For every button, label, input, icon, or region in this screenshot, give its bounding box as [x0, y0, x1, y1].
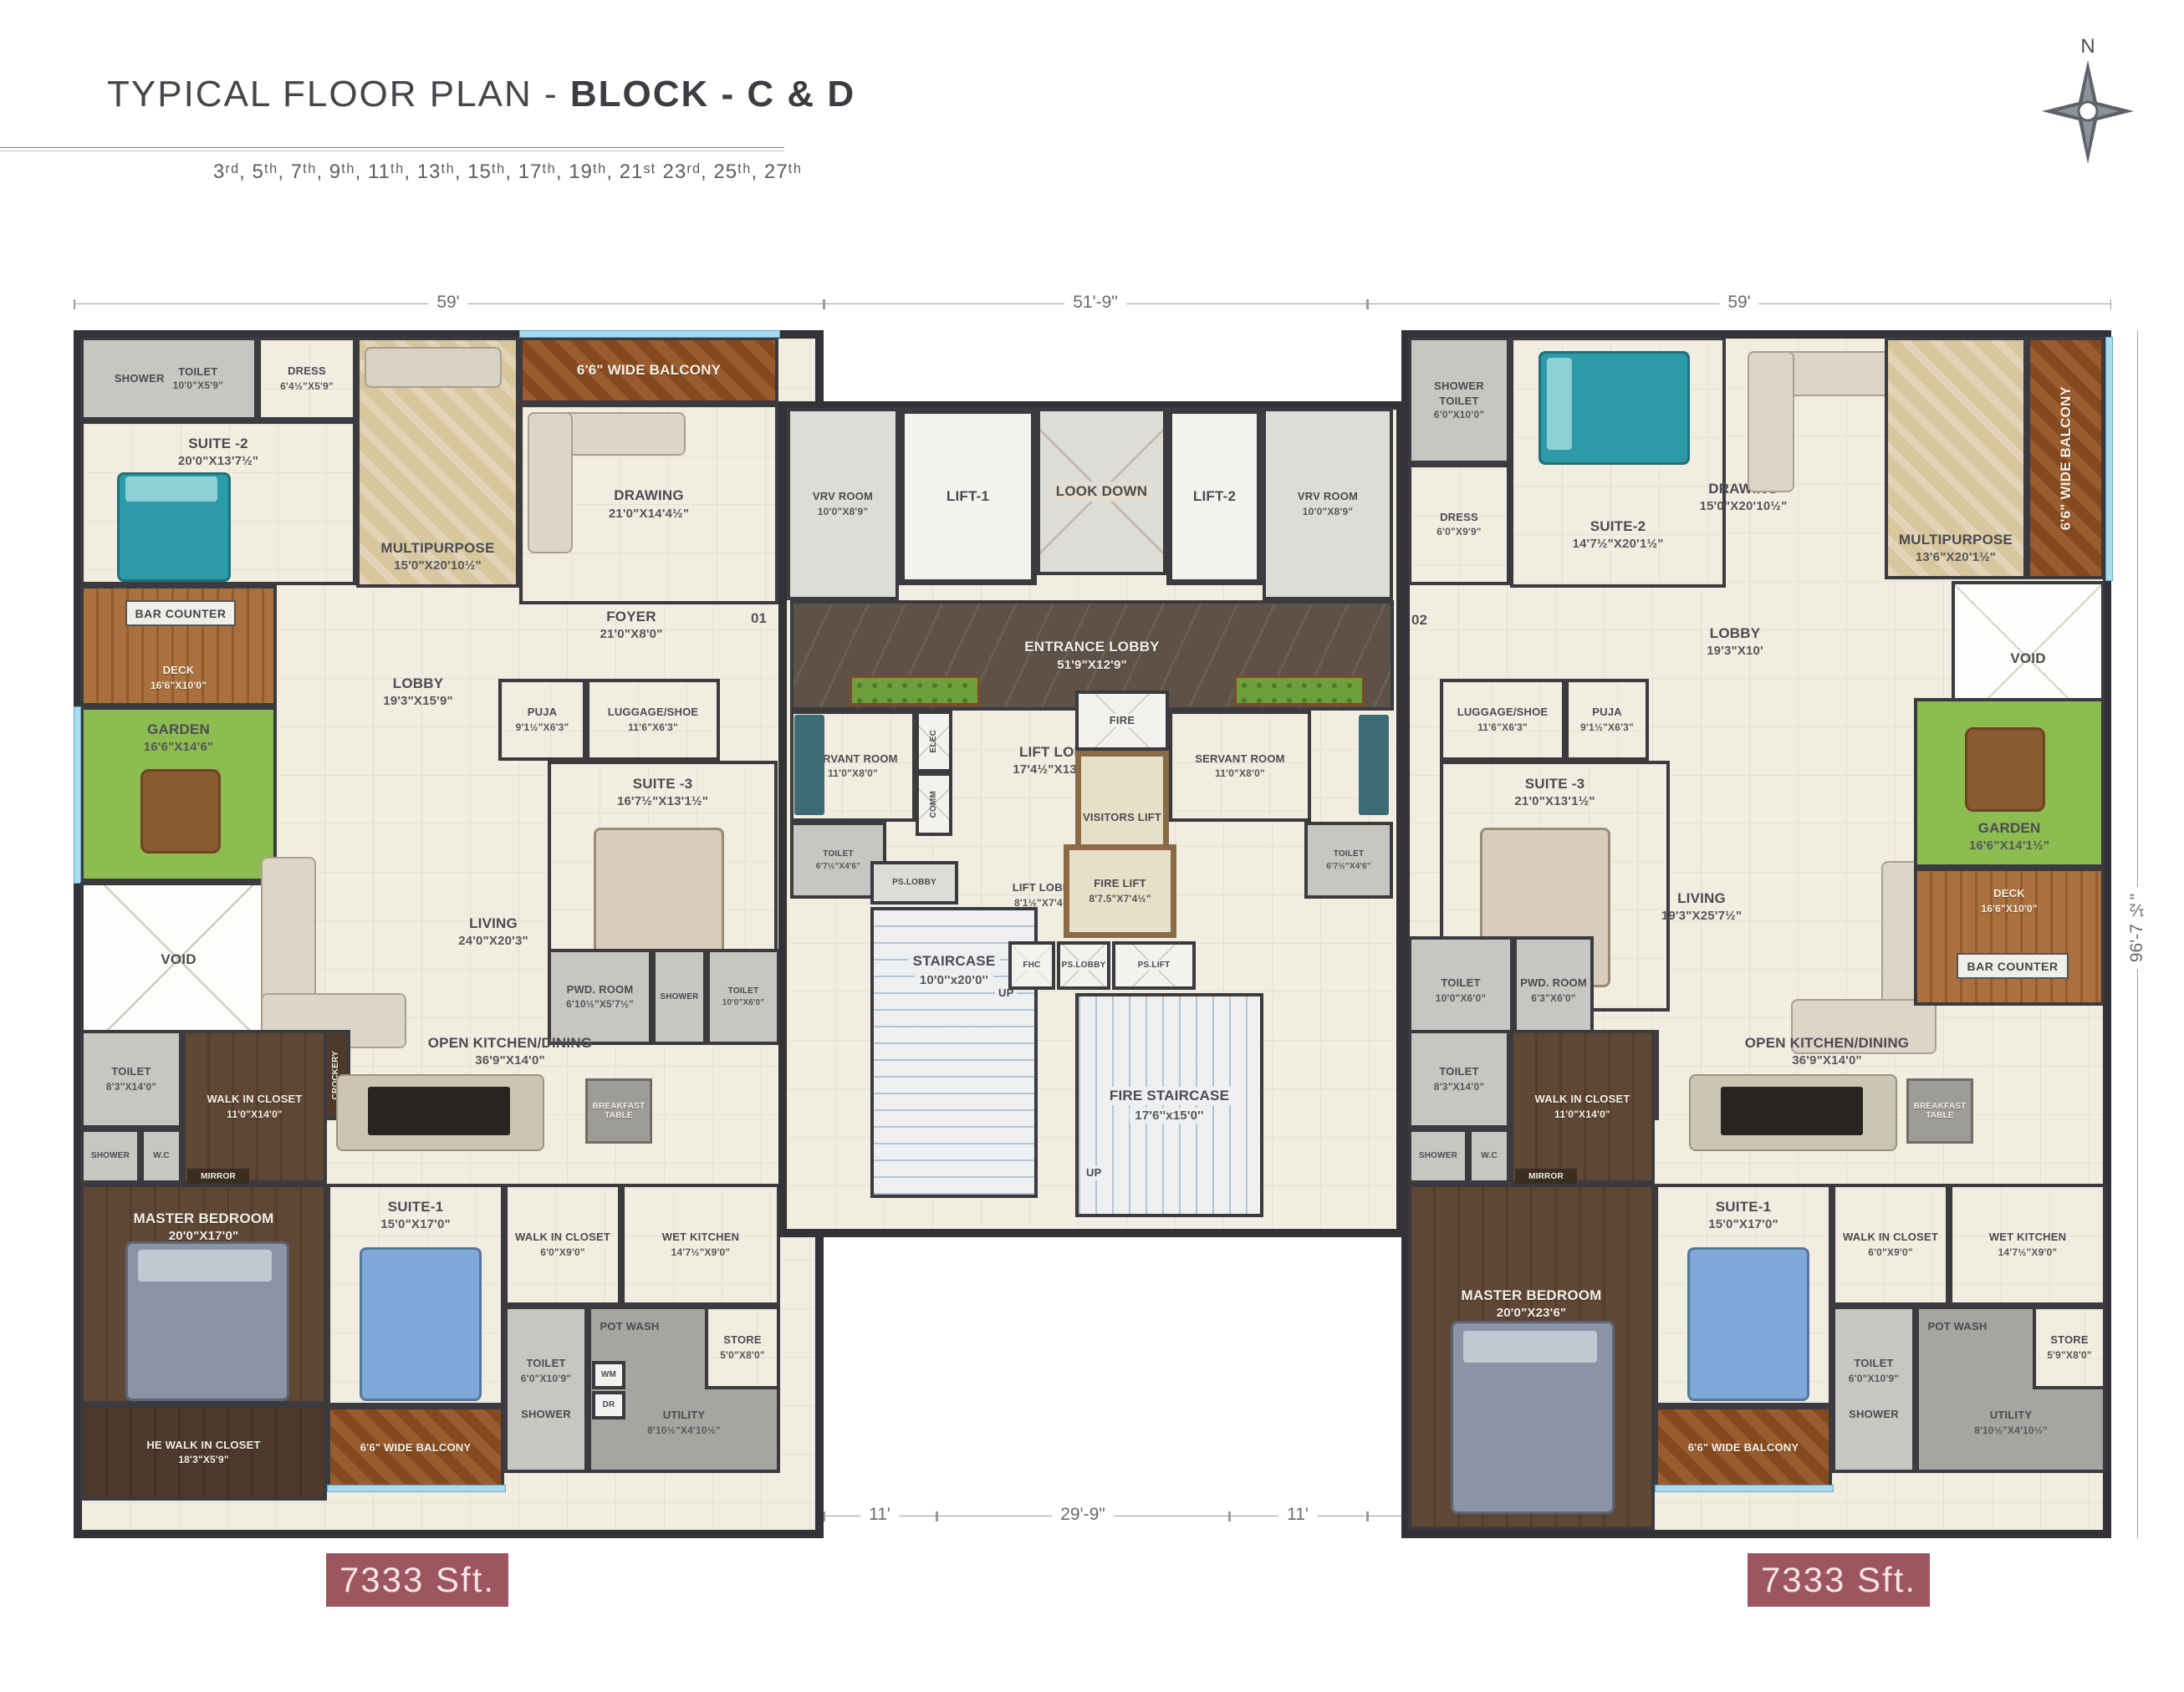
room-puja-left: PUJA9'1½"X6'3": [498, 679, 586, 761]
room-toilet-master-left: TOILET8'3"X14'0": [80, 1030, 182, 1129]
area-badge-left: 7333 Sft.: [326, 1553, 508, 1607]
balcony-bottom-left: 6'6" WIDE BALCONY: [327, 1406, 504, 1490]
window-strip: [2105, 337, 2113, 581]
floor-plan-page: TYPICAL FLOOR PLAN - BLOCK - C & D 3ʳᵈ, …: [0, 0, 2184, 1692]
window-strip: [1655, 1485, 1834, 1492]
room-toilet-servant-right: TOILET6'7½"X4'6": [1304, 822, 1393, 899]
label-lobby-right: LOBBY19'3"X10': [1664, 625, 1806, 658]
lift-1: LIFT-1: [899, 408, 1037, 585]
balcony-top-left: 6'6" WIDE BALCONY: [519, 337, 778, 404]
room-store-right: STORE5'9"X8'0": [2033, 1306, 2106, 1389]
mirror-right: MIRROR: [1515, 1169, 1577, 1185]
room-powder-left: PWD. ROOM6'10½"X5'7½": [548, 949, 652, 1045]
window-strip: [327, 1485, 506, 1492]
dim-bottom-gap-right: 11': [1278, 1505, 1317, 1525]
room-luggage-shoe-left: LUGGAGE/SHOE11'6"X6'3": [586, 679, 720, 761]
bed-graphic: [360, 1247, 482, 1401]
area-badge-right: 7333 Sft.: [1748, 1553, 1930, 1607]
ps-lift: PS.LIFT: [1112, 941, 1196, 990]
bar-counter-sign-left: BAR COUNTER: [125, 600, 236, 626]
deck-right: DECK16'6"X10'0": [1914, 868, 2105, 1006]
ps-lobby-lower: PS.LOBBY: [1057, 941, 1110, 990]
room-multipurpose-right: MULTIPURPOSE13'6"X20'1½": [1885, 337, 2027, 579]
bed-graphic: [794, 715, 824, 815]
room-label: SHOWER: [115, 373, 165, 385]
balcony-bottom-right: 6'6" WIDE BALCONY: [1655, 1406, 1832, 1490]
pillows-graphic: [138, 1250, 272, 1282]
sofa-graphic: [365, 347, 502, 388]
room-shower-suite3-left: SHOWER: [652, 949, 707, 1045]
room-toilet-suite1-right: TOILET6'0"X10'9" SHOWER: [1832, 1306, 1916, 1473]
comm-shaft: COMM: [916, 772, 952, 836]
void-left: VOID: [80, 882, 277, 1037]
room-walk-in-closet-suite1-right: WALK IN CLOSET6'0"X9'0": [1832, 1184, 1949, 1306]
label-open-kitchen-right: OPEN KITCHEN/DINING36'9"X14'0": [1743, 1035, 1911, 1068]
north-compass-icon: N: [2042, 35, 2134, 169]
label-drawing-right: DRAWING15'0"X20'10½": [1660, 481, 1827, 513]
label-open-kitchen-left: OPEN KITCHEN/DINING36'9"X14'0": [426, 1035, 594, 1068]
room-toilet-suite1-left: TOILET6'0"X10'9" SHOWER: [504, 1306, 588, 1473]
look-down-cutout: LOOK DOWN: [1037, 408, 1166, 575]
ps-lobby-upper: PS.LOBBY: [870, 861, 958, 905]
room-toilet-master-right: TOILET8'3"X14'0": [1408, 1030, 1510, 1129]
lift-2: LIFT-2: [1166, 408, 1263, 585]
dim-top-center: 51'-9": [1064, 293, 1126, 313]
room-toilet-suite2-right: SHOWER TOILET6'0"X10'0": [1408, 337, 1510, 464]
room-wet-kitchen-right: WET KITCHEN14'7½"X9'0": [1949, 1184, 2106, 1306]
dim-top-right: 59': [1719, 293, 1758, 313]
floors-subtitle: 3ʳᵈ, 5ᵗʰ, 7ᵗʰ, 9ᵗʰ, 11ᵗʰ, 13ᵗʰ, 15ᵗʰ, 17…: [213, 161, 802, 184]
title-underline: [0, 147, 784, 151]
bed-graphic: [1687, 1247, 1809, 1401]
door-label-02: 02: [1411, 612, 1427, 629]
mirror-left: MIRROR: [187, 1169, 249, 1185]
dim-bottom-center: 29'-9": [1052, 1505, 1114, 1525]
label-pot-wash-right: POT WASH: [1920, 1321, 1995, 1333]
room-shower-master-right: SHOWER: [1408, 1129, 1468, 1184]
garden-table-graphic: [1965, 727, 2045, 812]
room-vrv-right: VRV ROOM10'0"X8'9": [1263, 408, 1393, 600]
room-walk-in-closet-master-right: WALK IN CLOSET11'0"X14'0": [1510, 1030, 1655, 1184]
room-shower-master-left: SHOWER: [80, 1129, 140, 1184]
label-pot-wash-left: POT WASH: [592, 1321, 667, 1333]
room-store-left: STORE5'0"X8'0": [705, 1306, 780, 1389]
room-wc-master-right: W.C: [1468, 1129, 1510, 1184]
room-toilet-suite3-right: TOILET10'0"X6'0": [1408, 936, 1513, 1045]
breakfast-table-right: BREAKFAST TABLE: [1906, 1078, 1973, 1144]
sofa-graphic: [1748, 351, 1794, 492]
elec-shaft: ELEC: [916, 711, 952, 772]
shower-sublabel: SHOWER: [1849, 1409, 1899, 1421]
room-wc-master-left: W.C: [140, 1129, 182, 1184]
door-label-01: 01: [751, 610, 767, 627]
pillows-graphic: [1463, 1331, 1597, 1363]
room-dress-suite2-right: DRESS6'0"X9'9": [1408, 464, 1510, 585]
breakfast-table-left: BREAKFAST TABLE: [585, 1078, 652, 1144]
label-foyer-left: FOYER21'0"X8'0": [552, 609, 711, 641]
balcony-side-right: 6'6" WIDE BALCONY: [2027, 337, 2105, 579]
room-powder-right: PWD. ROOM6'3"X6'0": [1513, 936, 1594, 1045]
room-servant-right: SERVANT ROOM11'0"X8'0": [1169, 711, 1311, 822]
room-toilet-suite3-left: TOILET10'0"X6'0": [707, 949, 780, 1045]
dim-bottom-gap-left: 11': [860, 1505, 899, 1525]
label-lobby-left: LOBBY19'3"X15'9": [351, 675, 485, 708]
label-living-left: LIVING24'0"X20'3": [422, 915, 564, 948]
compass-star-icon: [2042, 59, 2134, 167]
garden-table-graphic: [140, 769, 221, 854]
fhc-shaft: FHC: [1008, 941, 1055, 990]
fire-lift: FIRE LIFT8'7.5"X7'4½": [1064, 844, 1176, 938]
planter-graphic: [850, 675, 980, 706]
room-luggage-shoe-right: LUGGAGE/SHOE11'6"X6'3": [1440, 679, 1565, 761]
room-vrv-left: VRV ROOM10'0"X8'9": [787, 408, 899, 600]
dining-table-top-graphic: [1721, 1087, 1863, 1135]
washing-machine-left: WM: [592, 1361, 625, 1389]
room-he-walk-in-closet-left: HE WALK IN CLOSET18'3"X5'9": [80, 1404, 327, 1501]
fire-shaft: FIRE: [1075, 691, 1169, 751]
dryer-left: DR: [592, 1391, 625, 1419]
dim-right-height: 96'-7 ½": [2127, 887, 2147, 969]
window-strip: [519, 330, 780, 338]
room-puja-right: PUJA9'1½"X6'3": [1565, 679, 1649, 761]
dim-top-left: 59': [428, 293, 467, 313]
room-dress-suite2-left: DRESS6'4½"X5'9": [258, 337, 356, 420]
label-living-right: LIVING19'3"X25'7½": [1626, 890, 1777, 923]
room-wet-kitchen-left: WET KITCHEN14'7½"X9'0": [621, 1184, 780, 1306]
room-toilet-suite2-left: SHOWER TOILET10'0"X5'9": [80, 337, 258, 420]
fire-staircase: FIRE STAIRCASE 17'6''x15'0'': [1075, 993, 1263, 1217]
shower-sublabel: SHOWER: [521, 1409, 571, 1421]
bar-counter-sign-right: BAR COUNTER: [1957, 953, 2069, 979]
window-strip: [74, 706, 81, 884]
page-title-block: BLOCK - C & D: [570, 74, 855, 115]
room-walk-in-closet-master-left: WALK IN CLOSET11'0"X14'0": [182, 1030, 327, 1184]
north-label: N: [2042, 35, 2134, 59]
planter-graphic: [1234, 675, 1365, 706]
pillows-graphic: [125, 477, 217, 502]
dining-table-top-graphic: [368, 1087, 510, 1135]
bed-graphic: [1359, 715, 1389, 815]
pillows-graphic: [1547, 358, 1572, 450]
sofa-graphic: [528, 412, 573, 553]
page-title: TYPICAL FLOOR PLAN - BLOCK - C & D: [107, 74, 855, 115]
room-walk-in-closet-suite1-left: WALK IN CLOSET6'0"X9'0": [504, 1184, 621, 1306]
label-up-fire-staircase: UP: [1083, 1166, 1105, 1180]
